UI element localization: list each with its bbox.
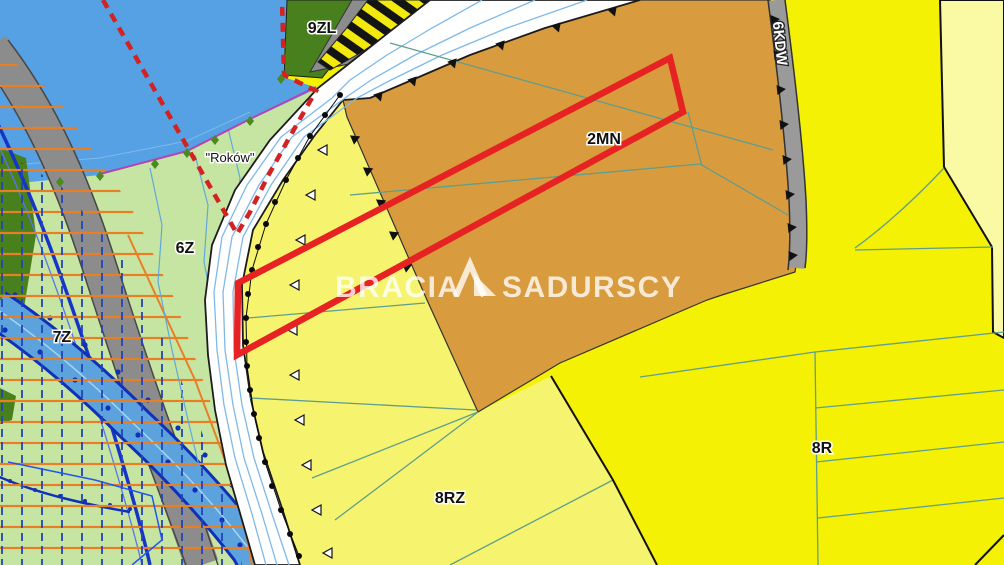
label-9zl: 9ZL [308,20,337,37]
label-6z: 6Z [176,240,195,257]
watermark-part2: SADURSCY [502,271,682,304]
label-rokow: "Roków" [206,150,255,165]
label-8r: 8R [812,440,833,457]
label-2mn: 2MN [587,131,621,148]
zoning-map-svg: 2MN 6Z 7Z 8RZ 8R 9ZL "Roków" 6KDW BRACIA… [0,0,1004,565]
zoning-map-canvas[interactable]: 2MN 6Z 7Z 8RZ 8R 9ZL "Roków" 6KDW BRACIA… [0,0,1004,565]
label-7z: 7Z [53,329,72,346]
watermark-part1: BRACIA [335,271,461,304]
label-8rz: 8RZ [435,490,465,507]
